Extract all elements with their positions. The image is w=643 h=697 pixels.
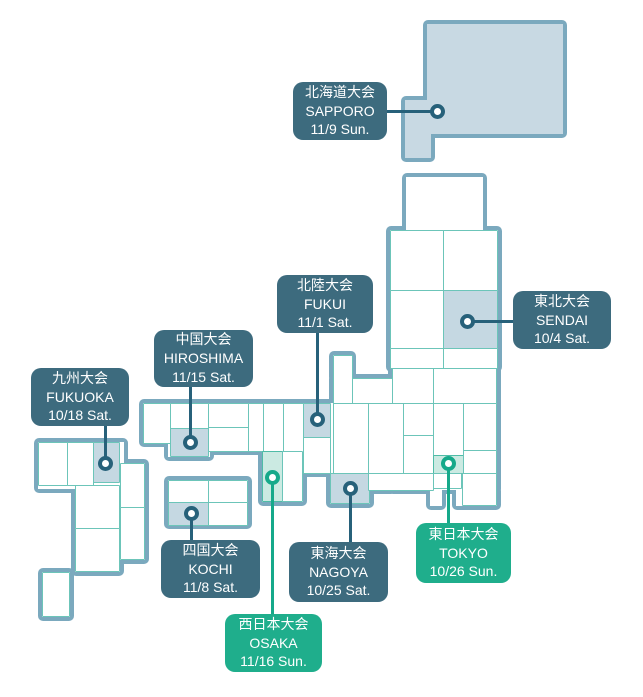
- kanto-region: [430, 490, 442, 506]
- hokkaido-region: [427, 24, 563, 134]
- map-cell: [433, 368, 497, 404]
- fukui-pin: [310, 412, 325, 427]
- map-cell: [168, 480, 209, 503]
- city-name: OSAKA: [249, 634, 297, 653]
- map-cell: [208, 427, 249, 452]
- kochi-event-label[interactable]: 四国大会 KOCHI 11/8 Sat.: [161, 540, 260, 598]
- map-cell: [403, 435, 434, 474]
- tokyo-connector-line: [447, 463, 450, 524]
- fukuoka-event-label[interactable]: 九州大会 FUKUOKA 10/18 Sat.: [31, 368, 129, 426]
- map-cell: [392, 368, 434, 404]
- sendai-event-label[interactable]: 東北大会 SENDAI 10/4 Sat.: [513, 291, 611, 349]
- hiroshima-connector-line: [189, 385, 192, 442]
- map-cell: [67, 442, 94, 486]
- region-name: 北海道大会: [305, 83, 375, 102]
- map-cell: [443, 230, 498, 291]
- event-date: 11/15 Sat.: [172, 368, 235, 387]
- city-name: NAGOYA: [309, 563, 368, 582]
- map-cell: [208, 480, 248, 503]
- map-cell: [208, 403, 249, 428]
- map-cell: [38, 442, 68, 486]
- event-date: 10/26 Sun.: [430, 562, 498, 581]
- fukuoka-pin: [98, 456, 113, 471]
- map-cell: [42, 572, 70, 617]
- city-name: TOKYO: [439, 544, 488, 563]
- map-cell: [303, 437, 331, 474]
- region-name: 東日本大会: [429, 525, 499, 544]
- city-name: SENDAI: [536, 311, 588, 330]
- nagoya-event-label[interactable]: 東海大会 NAGOYA 10/25 Sat.: [289, 542, 388, 602]
- map-cell: [368, 473, 434, 491]
- map-cell: [120, 507, 145, 560]
- region-name: 西日本大会: [239, 615, 309, 634]
- sapporo-pin: [430, 104, 445, 119]
- region-name: 四国大会: [183, 541, 239, 560]
- sendai-pin: [460, 314, 475, 329]
- map-cell: [120, 463, 145, 508]
- aomori-region: [406, 177, 483, 230]
- nagoya-pin: [343, 481, 358, 496]
- region-name: 北陸大会: [297, 276, 353, 295]
- city-name: HIROSHIMA: [164, 349, 243, 368]
- event-date: 11/9 Sun.: [311, 120, 370, 139]
- map-cell: [208, 502, 248, 526]
- sapporo-event-label[interactable]: 北海道大会 SAPPORO 11/9 Sun.: [293, 82, 387, 140]
- osaka-connector-line: [271, 477, 274, 616]
- event-date: 10/18 Sat.: [48, 406, 112, 425]
- map-cell: [368, 403, 404, 474]
- city-name: KOCHI: [188, 560, 232, 579]
- event-date: 11/16 Sun.: [240, 652, 307, 671]
- map-cell: [263, 403, 284, 457]
- japan-event-map: 北海道大会 SAPPORO 11/9 Sun. 東北大会 SENDAI 10/4…: [0, 0, 643, 697]
- event-date: 10/25 Sat.: [307, 581, 371, 600]
- city-name: FUKUI: [304, 295, 346, 314]
- map-cell: [390, 230, 444, 291]
- event-date: 11/8 Sat.: [183, 578, 238, 597]
- map-cell: [333, 403, 369, 474]
- region-name: 東北大会: [534, 292, 590, 311]
- osaka-pin: [265, 470, 280, 485]
- map-cell: [390, 348, 444, 369]
- map-cell: [390, 290, 444, 349]
- map-cell: [443, 348, 498, 369]
- region-name: 東海大会: [311, 544, 367, 563]
- map-cell: [283, 403, 304, 457]
- map-cell: [403, 403, 434, 436]
- hiroshima-event-label[interactable]: 中国大会 HIROSHIMA 11/15 Sat.: [154, 330, 253, 387]
- kochi-pin: [184, 506, 199, 521]
- map-cell: [282, 451, 303, 502]
- map-cell: [75, 528, 120, 572]
- region-name: 中国大会: [176, 330, 232, 349]
- osaka-event-label[interactable]: 西日本大会 OSAKA 11/16 Sun.: [225, 614, 322, 672]
- map-cell: [143, 403, 171, 444]
- region-name: 九州大会: [52, 369, 108, 388]
- tokyo-event-label[interactable]: 東日本大会 TOKYO 10/26 Sun.: [416, 523, 511, 583]
- event-date: 11/1 Sat.: [297, 313, 352, 332]
- map-cell: [463, 403, 497, 451]
- map-cell: [433, 403, 464, 456]
- map-cell: [75, 485, 120, 529]
- fukui-connector-line: [316, 331, 319, 419]
- map-cell: [333, 355, 353, 404]
- city-name: FUKUOKA: [46, 388, 114, 407]
- map-cell: [352, 378, 393, 404]
- map-cell: [462, 473, 497, 506]
- tokyo-pin: [441, 456, 456, 471]
- event-date: 10/4 Sat.: [534, 329, 590, 348]
- fukui-event-label[interactable]: 北陸大会 FUKUI 11/1 Sat.: [277, 275, 373, 333]
- nagoya-connector-line: [349, 488, 352, 544]
- hiroshima-pin: [183, 435, 198, 450]
- city-name: SAPPORO: [305, 102, 374, 121]
